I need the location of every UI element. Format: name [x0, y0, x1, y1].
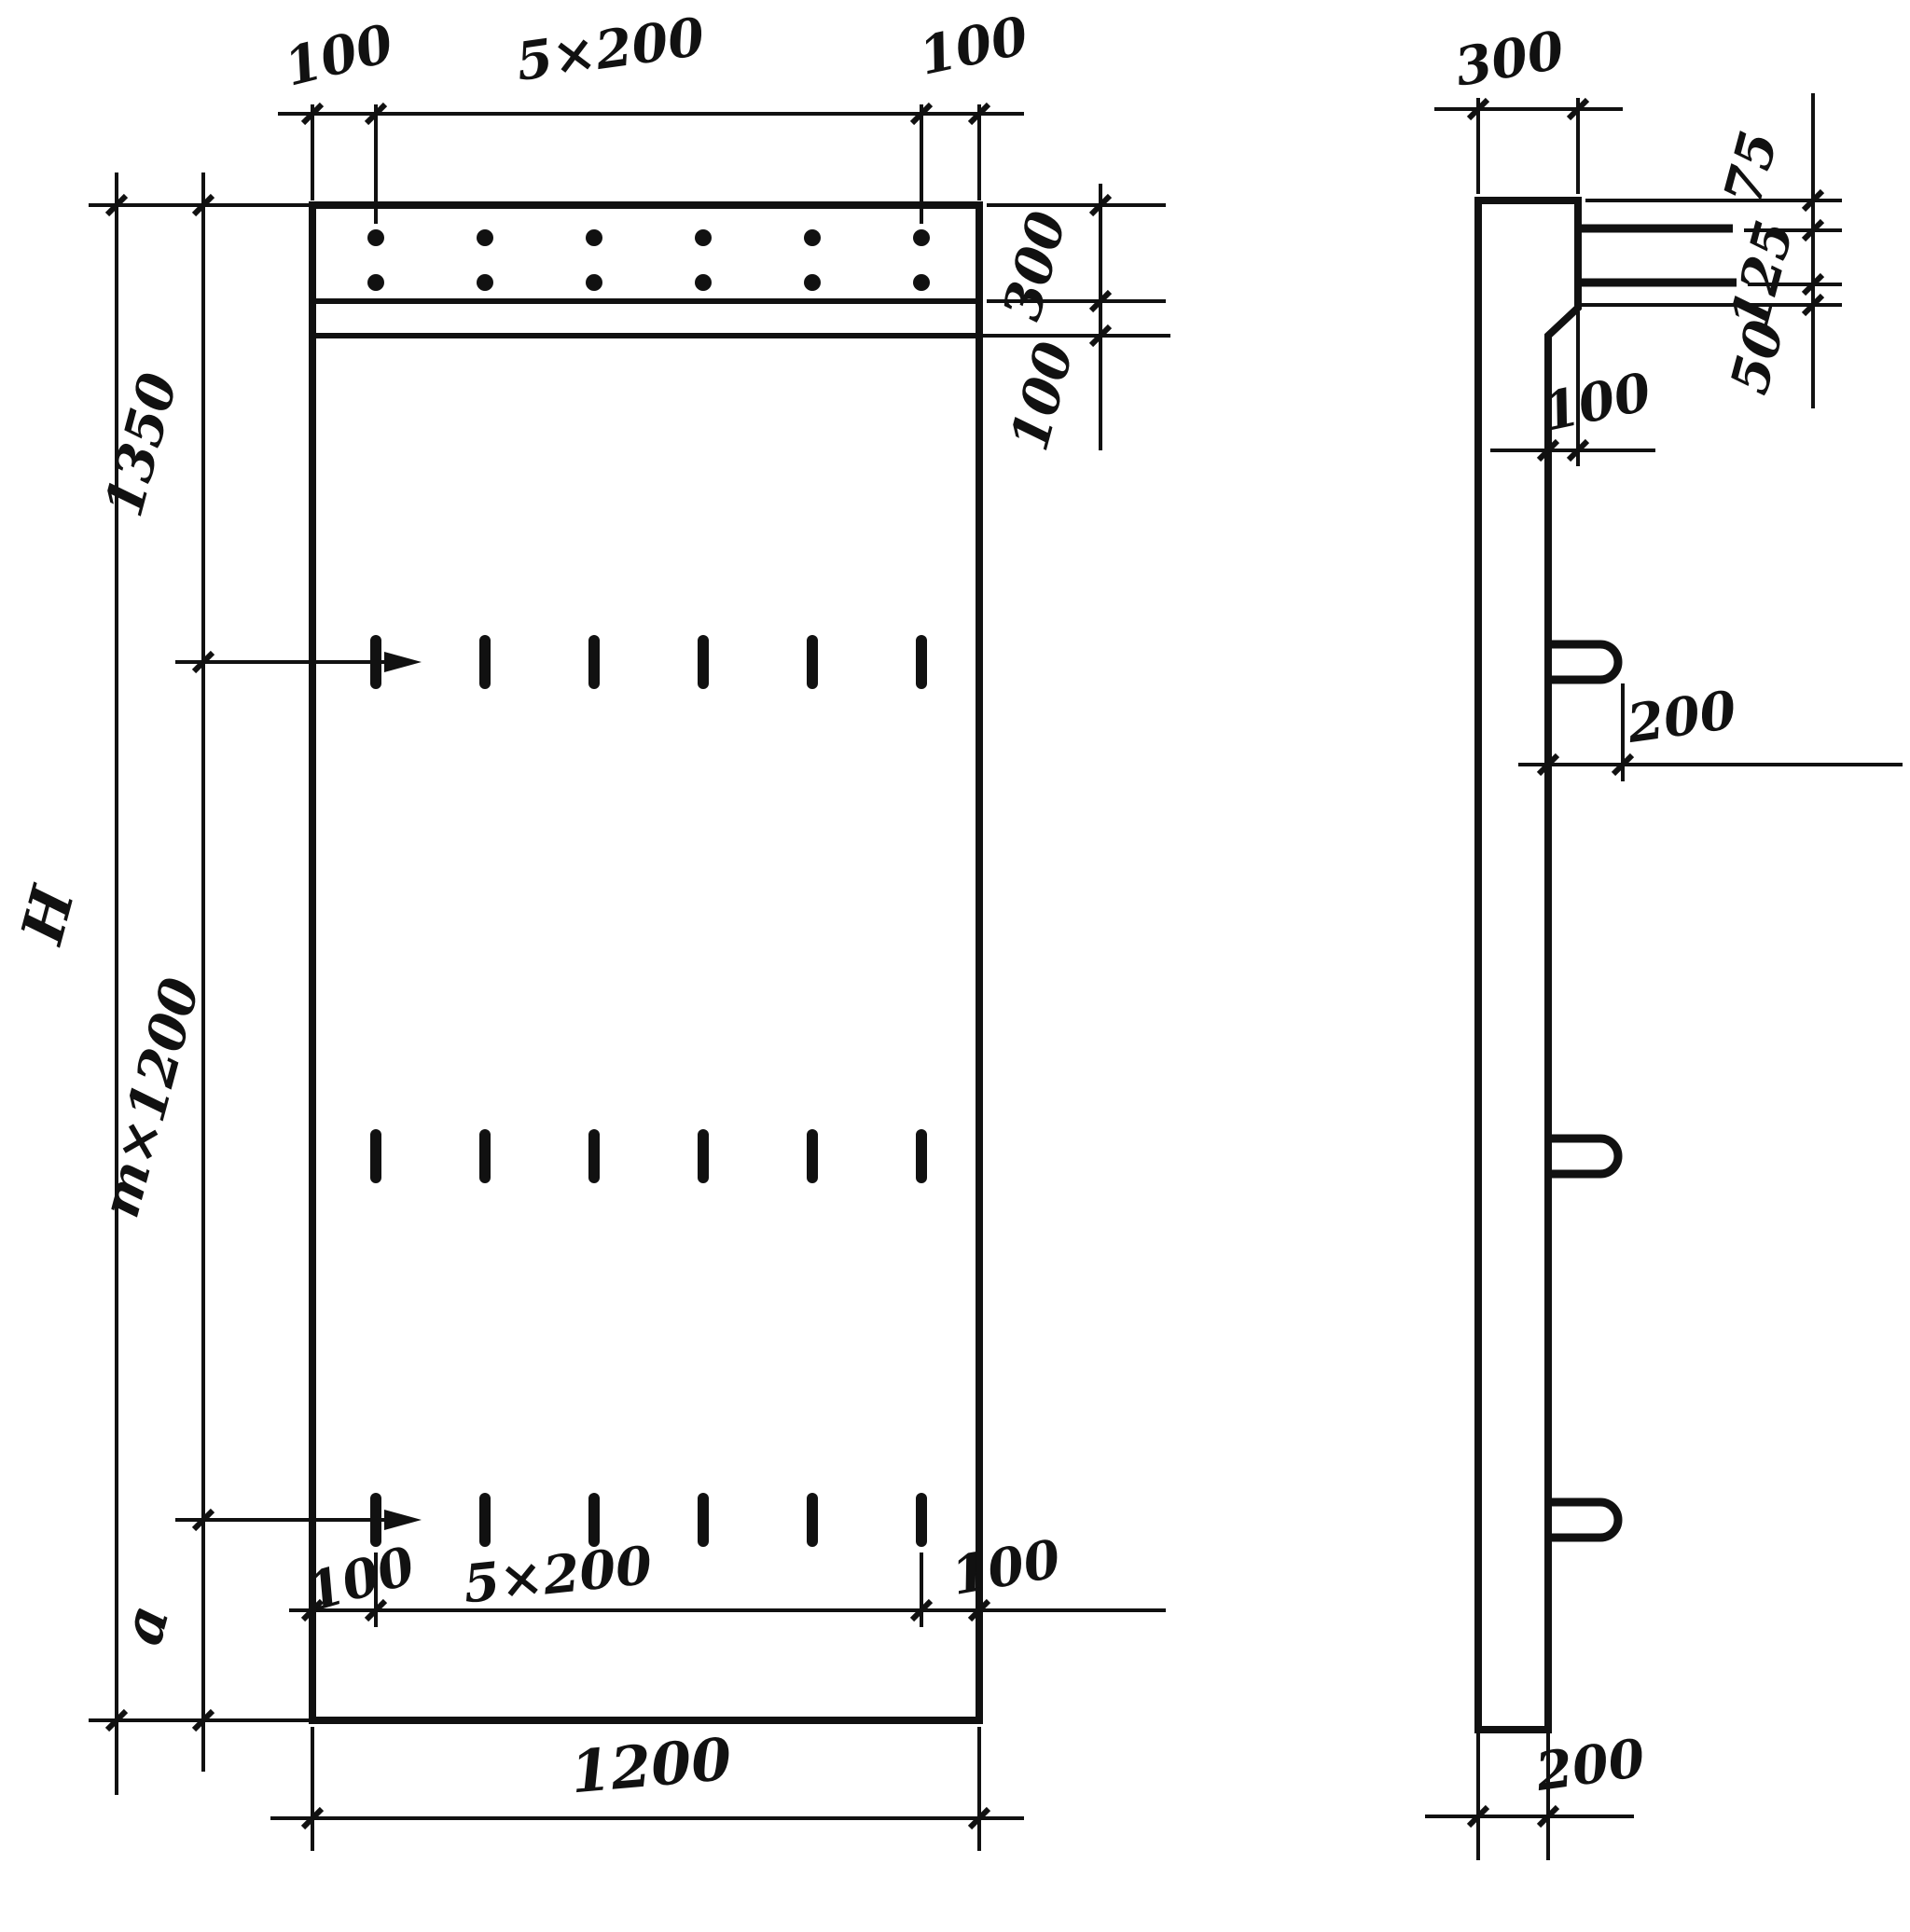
- panel-outline: [312, 205, 979, 1720]
- dim-label-overall-height: H: [7, 877, 89, 952]
- dim-label-bottom-margin-right: 100: [947, 1528, 1065, 1608]
- dim-label-band-height: 300: [991, 205, 1079, 326]
- front-right-dimension: 300 100: [970, 184, 1170, 457]
- front-bottom-inner-dimension: 100 5×200 100: [289, 1528, 1166, 1627]
- side-bottom-dimension: 200: [1425, 1727, 1649, 1860]
- dim-label-left-top-offset: 1350: [93, 366, 190, 523]
- dim-label-step-depth: 100: [1537, 361, 1656, 444]
- technical-drawing: 100 5×200 100 300 100: [0, 0, 1910, 1932]
- dim-label-bar-spacing: 125: [1719, 214, 1806, 336]
- dim-label-loop-protrusion: 200: [1623, 679, 1740, 755]
- side-top-dimension: 300: [1434, 20, 1623, 194]
- dim-label-overall-width: 1200: [568, 1725, 734, 1807]
- dim-label-top-thickness: 300: [1450, 20, 1569, 99]
- side-bar-dimensions: 75 125 50: [1581, 93, 1842, 408]
- front-bottom-overall-dimension: 1200: [270, 1725, 1024, 1851]
- slot-dashes: [370, 635, 927, 1547]
- dim-label-bar-offset-bottom: 50: [1719, 314, 1797, 400]
- drawing-page: 100 5×200 100 300 100: [0, 0, 1910, 1932]
- dim-label-top-margin-right: 100: [914, 5, 1033, 88]
- dim-label-module-spacing: m×1200: [90, 972, 213, 1223]
- dim-label-bar-offset-top: 75: [1712, 125, 1791, 211]
- side-loop-dimension: 200: [1518, 679, 1903, 781]
- front-view: 100 5×200 100 300 100: [7, 5, 1170, 1851]
- dim-label-top-spacing: 5×200: [512, 6, 708, 93]
- lifting-loops: [1548, 644, 1618, 1538]
- front-top-dimension: 100 5×200 100: [278, 5, 1033, 224]
- side-view: 300 75 125 50 100: [1425, 20, 1903, 1860]
- dim-label-top-margin-left: 100: [279, 12, 399, 98]
- anchor-dots: [367, 229, 930, 291]
- dim-label-band-gap: 100: [999, 336, 1086, 457]
- dim-label-bottom-spacing: 5×200: [461, 1535, 656, 1616]
- side-step-dimension: 100: [1490, 311, 1656, 466]
